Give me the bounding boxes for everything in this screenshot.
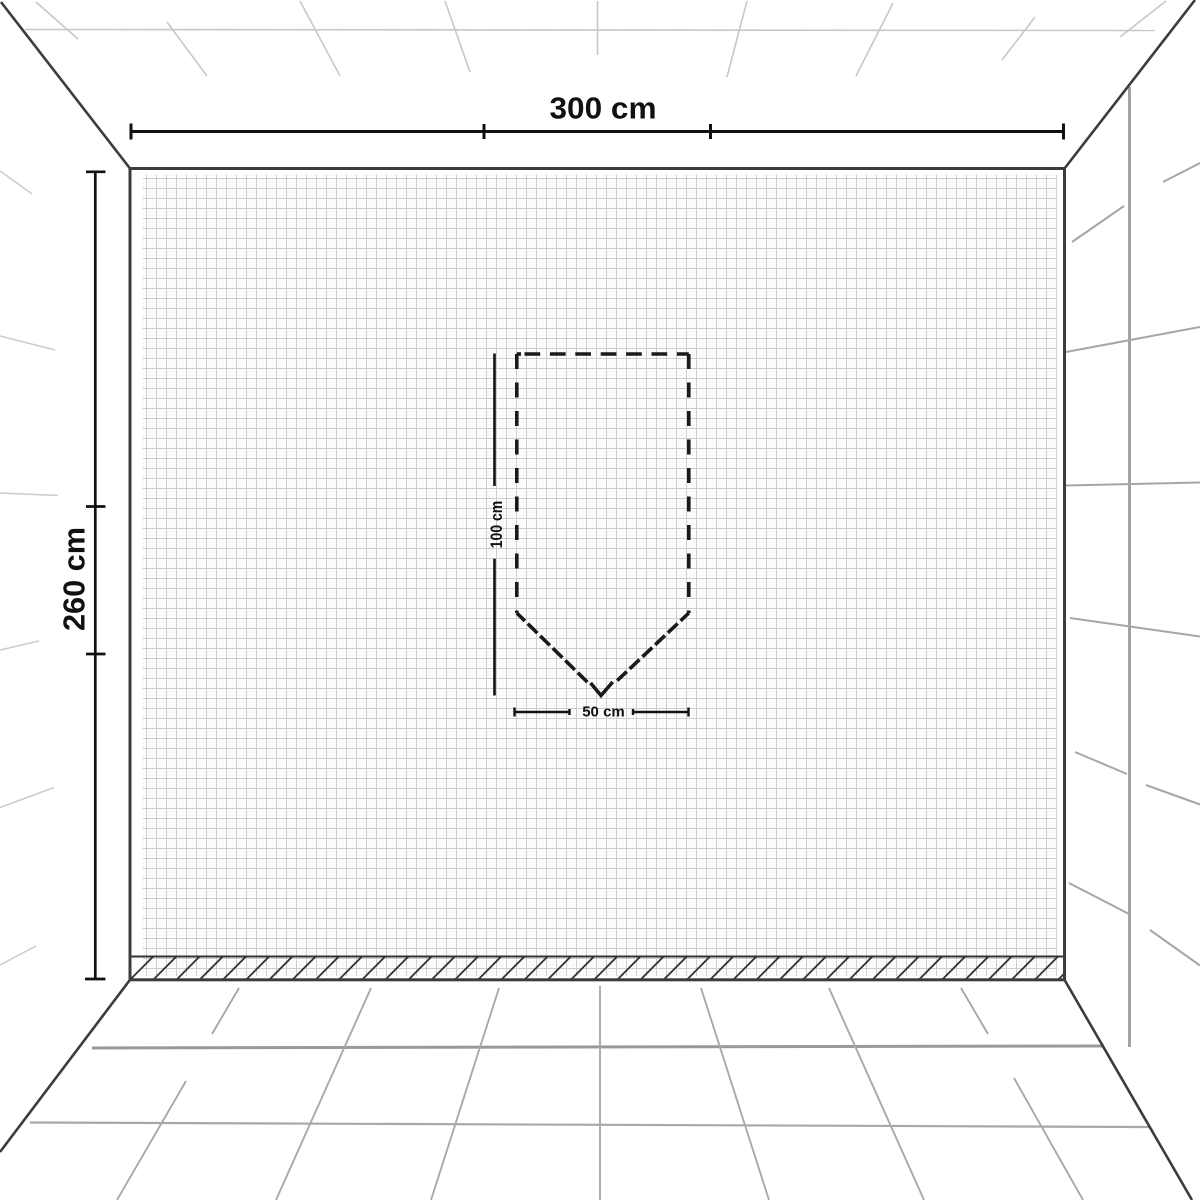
svg-text:100 cm: 100 cm — [487, 501, 506, 549]
svg-text:260 cm: 260 cm — [57, 527, 92, 631]
svg-text:300 cm: 300 cm — [550, 91, 657, 126]
svg-text:50 cm: 50 cm — [582, 704, 625, 721]
